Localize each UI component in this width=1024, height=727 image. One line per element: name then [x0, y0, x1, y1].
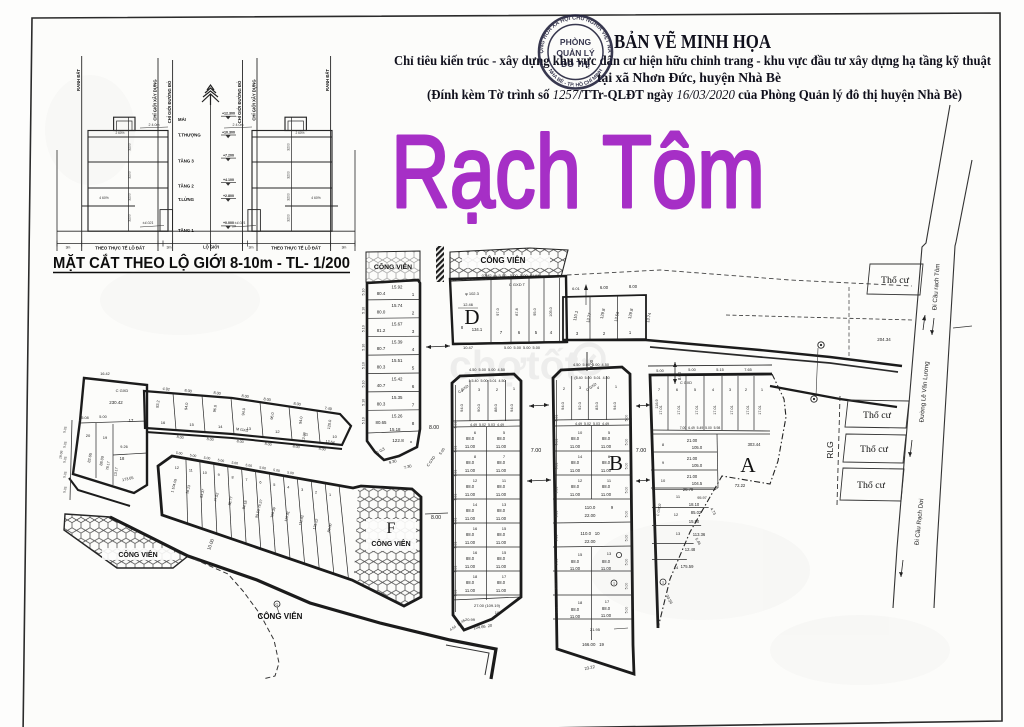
svg-text:RANH ĐẤT: RANH ĐẤT — [325, 69, 330, 91]
svg-text:4 60%: 4 60% — [99, 196, 109, 200]
svg-text:7.00: 7.00 — [531, 448, 542, 454]
svg-text:4.49 5.02 5.03 4.49: 4.49 5.02 5.03 4.49 — [470, 423, 504, 427]
svg-text:9: 9 — [218, 473, 220, 477]
svg-text:CÔNG VIÊN: CÔNG VIÊN — [481, 256, 526, 265]
svg-text:TẦNG 2: TẦNG 2 — [178, 183, 194, 188]
svg-text:7.00: 7.00 — [636, 448, 647, 454]
svg-text:19: 19 — [103, 435, 108, 440]
svg-text:18: 18 — [473, 574, 478, 579]
svg-text:15.26: 15.26 — [392, 413, 404, 418]
svg-text:3200: 3200 — [287, 214, 291, 222]
svg-text:5.10: 5.10 — [362, 289, 366, 296]
svg-text:116.9: 116.9 — [655, 399, 659, 408]
svg-text:5.01: 5.01 — [454, 494, 458, 501]
svg-text:+10.300: +10.300 — [222, 130, 235, 134]
svg-text:15.35: 15.35 — [392, 395, 404, 400]
svg-text:18.10: 18.10 — [689, 502, 700, 507]
svg-text:21.00: 21.00 — [687, 438, 698, 443]
svg-text:+2.800: +2.800 — [223, 194, 234, 198]
svg-text:7: 7 — [245, 478, 247, 482]
svg-text:17.01: 17.01 — [746, 405, 750, 415]
svg-text:1: 1 — [329, 493, 331, 497]
svg-text:5.01: 5.01 — [454, 518, 458, 525]
svg-text:16: 16 — [473, 550, 478, 555]
svg-text:5.01: 5.01 — [555, 415, 559, 422]
svg-text:83.0: 83.0 — [594, 401, 599, 410]
svg-text:88.0: 88.0 — [497, 580, 506, 585]
svg-text:2 4.0m: 2 4.0m — [233, 123, 244, 127]
svg-text:88.0: 88.0 — [466, 436, 475, 441]
svg-text:11.00: 11.00 — [601, 444, 612, 449]
svg-text:15: 15 — [502, 550, 507, 555]
svg-text:3: 3 — [412, 329, 415, 334]
svg-text:5.00: 5.00 — [625, 439, 629, 446]
svg-text:TẦNG 3: TẦNG 3 — [178, 159, 194, 164]
svg-text:BẢN VẼ MINH HỌA: BẢN VẼ MINH HỌA — [614, 31, 771, 53]
svg-text:11.00: 11.00 — [465, 516, 476, 521]
svg-text:88.0: 88.0 — [466, 484, 475, 489]
svg-text:3200: 3200 — [287, 143, 291, 151]
svg-text:LỘ GIỚI: LỘ GIỚI — [203, 245, 219, 250]
svg-text:11.00: 11.00 — [570, 468, 581, 473]
svg-text:6: 6 — [259, 481, 261, 485]
svg-text:3m: 3m — [342, 246, 347, 250]
svg-text:13: 13 — [502, 502, 507, 507]
svg-text:5: 5 — [273, 483, 275, 487]
svg-text:90.0: 90.0 — [476, 403, 481, 412]
svg-text:134.1: 134.1 — [472, 327, 483, 332]
svg-text:5.00: 5.00 — [625, 511, 629, 518]
svg-text:T.LỬNG: T.LỬNG — [178, 197, 195, 202]
svg-text:PHÒNG: PHÒNG — [560, 36, 592, 47]
svg-text:7: 7 — [412, 402, 415, 407]
svg-text:10: 10 — [332, 434, 337, 439]
svg-text:17.01: 17.01 — [659, 405, 663, 415]
svg-text:Thổ cư: Thổ cư — [863, 410, 892, 421]
svg-text:5.00: 5.00 — [625, 415, 629, 422]
svg-text:17.01: 17.01 — [713, 405, 717, 415]
svg-text:27.00 (109.19): 27.00 (109.19) — [474, 603, 501, 608]
svg-text:11.00: 11.00 — [465, 468, 476, 473]
svg-text:12: 12 — [674, 512, 679, 517]
svg-text:11.00: 11.00 — [570, 614, 581, 619]
svg-text:22.00: 22.00 — [585, 539, 597, 544]
svg-text:88.0: 88.0 — [466, 556, 475, 561]
svg-text:15.51: 15.51 — [392, 358, 404, 363]
svg-text:(Đính kèm Tờ trình số 1257/TTr: (Đính kèm Tờ trình số 1257/TTr-QLĐT ngày… — [427, 87, 962, 102]
svg-text:7.65: 7.65 — [744, 368, 751, 372]
svg-text:5.01: 5.01 — [454, 590, 458, 597]
svg-text:QUẢN LÝ: QUẢN LÝ — [556, 47, 595, 58]
svg-text:11.00: 11.00 — [496, 516, 507, 521]
svg-text:5.01: 5.01 — [555, 559, 559, 566]
svg-text:72.22: 72.22 — [735, 483, 746, 488]
svg-text:12: 12 — [175, 466, 179, 470]
svg-text:16: 16 — [473, 526, 478, 531]
svg-text:+0.000: +0.000 — [223, 221, 234, 225]
svg-text:15: 15 — [502, 526, 507, 531]
svg-text:17: 17 — [129, 418, 134, 423]
svg-text:11.00: 11.00 — [601, 492, 612, 497]
svg-text:5.00: 5.00 — [625, 487, 629, 494]
svg-text:88.0: 88.0 — [497, 532, 506, 537]
svg-text:15.39: 15.39 — [392, 340, 404, 345]
svg-text:12.46: 12.46 — [463, 302, 474, 307]
svg-text:88.0: 88.0 — [466, 532, 475, 537]
svg-text:88.0: 88.0 — [602, 436, 611, 441]
svg-text:1: 1 — [412, 292, 415, 297]
svg-text:6.00: 6.00 — [600, 285, 609, 290]
svg-text:14: 14 — [578, 454, 583, 459]
svg-text:4 60%: 4 60% — [311, 196, 321, 200]
svg-text:8.00: 8.00 — [677, 371, 682, 380]
svg-text:230.42: 230.42 — [109, 400, 123, 405]
svg-text:11.00: 11.00 — [465, 564, 476, 569]
svg-text:Chỉ tiêu kiến trúc - xây dựng: Chỉ tiêu kiến trúc - xây dựng khu vực dâ… — [394, 53, 992, 68]
svg-text:5.01: 5.01 — [454, 566, 458, 573]
svg-text:5.01: 5.01 — [454, 446, 458, 453]
svg-text:2: 2 — [315, 490, 317, 494]
svg-text:88.0: 88.0 — [493, 403, 498, 412]
svg-text:88.0: 88.0 — [497, 460, 506, 465]
svg-text:11.00: 11.00 — [496, 468, 507, 473]
svg-text:104.5: 104.5 — [692, 481, 703, 486]
svg-text:6: 6 — [412, 384, 415, 389]
svg-text:B: B — [609, 451, 623, 475]
svg-text:3: 3 — [301, 488, 303, 492]
svg-text:88.0: 88.0 — [571, 460, 580, 465]
svg-text:8: 8 — [232, 476, 234, 480]
svg-text:85.02: 85.02 — [691, 510, 702, 515]
svg-text:95.0: 95.0 — [533, 308, 537, 315]
svg-text:11.00: 11.00 — [496, 588, 507, 593]
svg-text:20.99: 20.99 — [465, 617, 476, 622]
svg-text:3200: 3200 — [128, 193, 132, 201]
svg-text:5.10: 5.10 — [362, 417, 366, 424]
svg-text:11.00: 11.00 — [570, 492, 581, 497]
svg-text:4: 4 — [287, 486, 289, 490]
svg-text:15.18: 15.18 — [390, 427, 402, 432]
svg-text:5.01: 5.01 — [454, 542, 458, 549]
svg-text:92.0: 92.0 — [577, 401, 582, 410]
svg-text:CÔNG VIÊN: CÔNG VIÊN — [371, 539, 410, 548]
svg-text:C GXD T: C GXD T — [509, 282, 526, 287]
svg-text:15: 15 — [578, 552, 583, 557]
svg-text:88.0: 88.0 — [571, 559, 580, 564]
svg-text:4.49 5.02 5.03 4.49: 4.49 5.02 5.03 4.49 — [575, 422, 609, 426]
svg-text:80.7: 80.7 — [377, 346, 386, 351]
svg-text:19: 19 — [495, 610, 500, 615]
svg-text:11.00: 11.00 — [465, 540, 476, 545]
svg-text:11.00: 11.00 — [496, 444, 507, 449]
svg-text:122.8: 122.8 — [392, 438, 404, 443]
svg-text:10: 10 — [578, 430, 583, 435]
svg-text:17.01: 17.01 — [758, 405, 762, 415]
svg-text:88.0: 88.0 — [571, 436, 580, 441]
svg-text:87.8: 87.8 — [515, 308, 519, 315]
svg-text:88.0: 88.0 — [497, 508, 506, 513]
svg-text:11.00: 11.00 — [496, 540, 507, 545]
svg-text:17.01: 17.01 — [730, 405, 734, 415]
svg-text:18: 18 — [120, 456, 125, 461]
svg-text:88.0: 88.0 — [466, 508, 475, 513]
svg-text:3200: 3200 — [128, 171, 132, 179]
svg-text:5.00: 5.00 — [99, 415, 106, 419]
svg-text:80.0: 80.0 — [377, 309, 386, 314]
svg-text:88.0: 88.0 — [466, 460, 475, 465]
svg-text:THEO THỰC TẾ LÔ ĐẤT: THEO THỰC TẾ LÔ ĐẤT — [95, 246, 145, 251]
svg-text:11.00: 11.00 — [465, 492, 476, 497]
svg-text:C GXD: C GXD — [680, 381, 692, 385]
svg-text:Thổ cư: Thổ cư — [857, 480, 886, 491]
svg-text:5.01: 5.01 — [454, 470, 458, 477]
svg-text:11.00: 11.00 — [570, 566, 581, 571]
svg-text:±4.021: ±4.021 — [143, 221, 154, 225]
svg-text:ĐÔ THỊ: ĐÔ THỊ — [561, 58, 590, 69]
svg-text:CÔNG VIÊN: CÔNG VIÊN — [118, 550, 157, 559]
svg-text:11.00: 11.00 — [465, 444, 476, 449]
svg-text:3200: 3200 — [287, 171, 291, 179]
svg-text:CHỈ GIỚI XÂY DỰNG: CHỈ GIỚI XÂY DỰNG — [153, 79, 158, 120]
svg-text:♦: ♦ — [410, 440, 412, 444]
svg-text:12: 12 — [275, 429, 280, 434]
svg-text:10: 10 — [203, 471, 207, 475]
svg-text:40.7: 40.7 — [377, 383, 386, 388]
svg-text:Rạch Tôm: Rạch Tôm — [391, 114, 765, 229]
svg-text:3m: 3m — [66, 246, 71, 250]
svg-text:21.00: 21.00 — [687, 456, 698, 461]
svg-text:D: D — [464, 305, 479, 329]
svg-text:18: 18 — [578, 600, 583, 605]
svg-text:CHỈ GIỚI XÂY DỰNG: CHỈ GIỚI XÂY DỰNG — [252, 79, 257, 120]
svg-text:303.44: 303.44 — [748, 442, 761, 447]
svg-text:F: F — [387, 520, 396, 537]
svg-text:5.01: 5.01 — [555, 487, 559, 494]
svg-text:110.0: 110.0 — [585, 505, 596, 510]
svg-text:11.00: 11.00 — [465, 588, 476, 593]
svg-text:5.00: 5.00 — [688, 368, 695, 372]
svg-text:29.79: 29.79 — [683, 487, 694, 492]
svg-text:7.00 6.49 5.49 5.00 5.98: 7.00 6.49 5.49 5.00 5.98 — [680, 426, 721, 430]
svg-text:105.0: 105.0 — [692, 445, 703, 450]
svg-text:20: 20 — [86, 433, 91, 438]
svg-text:88.0: 88.0 — [497, 484, 506, 489]
svg-text:5.10: 5.10 — [362, 381, 366, 388]
svg-text:12: 12 — [473, 478, 478, 483]
svg-text:88.0: 88.0 — [571, 607, 580, 612]
svg-text:1.5.40 5.00 5.01 4.50: 1.5.40 5.00 5.01 4.50 — [469, 379, 506, 383]
svg-text:15.67: 15.67 — [392, 321, 404, 326]
svg-text:204.34: 204.34 — [877, 337, 891, 342]
svg-text:11.00: 11.00 — [496, 564, 507, 569]
svg-text:C GXD: C GXD — [116, 388, 129, 393]
svg-text:95.97: 95.97 — [697, 496, 707, 500]
svg-text:88.0: 88.0 — [497, 436, 506, 441]
svg-text:94.0: 94.0 — [459, 403, 464, 412]
svg-text:94.0: 94.0 — [612, 401, 617, 410]
svg-text:2: 2 — [412, 310, 415, 315]
svg-text:12: 12 — [578, 478, 583, 483]
svg-text:5: 5 — [412, 366, 415, 371]
svg-text:T.THƯỢNG: T.THƯỢNG — [178, 133, 201, 138]
svg-text:5.01: 5.01 — [555, 463, 559, 470]
svg-text:2 4.0m: 2 4.0m — [149, 123, 160, 127]
svg-text:+4.100: +4.100 — [223, 178, 234, 182]
svg-text:(5.40 5.00 5.01 4.50: (5.40 5.00 5.01 4.50 — [574, 376, 609, 380]
svg-text:3m: 3m — [167, 246, 172, 250]
svg-text:15.74: 15.74 — [392, 303, 404, 308]
svg-text:5.01: 5.01 — [555, 511, 559, 518]
svg-text:MÁI: MÁI — [178, 117, 186, 122]
svg-text:10: 10 — [661, 478, 666, 483]
svg-text:14: 14 — [218, 424, 223, 429]
svg-text:φ 102.3: φ 102.3 — [465, 291, 479, 296]
svg-text:3200: 3200 — [287, 193, 291, 201]
svg-text:5.01: 5.01 — [555, 439, 559, 446]
svg-text:5.15: 5.15 — [716, 368, 723, 372]
svg-text:21.00: 21.00 — [687, 474, 698, 479]
svg-text:94.0: 94.0 — [509, 403, 514, 412]
svg-text:+12.300: +12.300 — [222, 112, 235, 116]
svg-text:5.10: 5.10 — [362, 325, 366, 332]
svg-text:88.0: 88.0 — [602, 484, 611, 489]
svg-text:CHỈ GIỚI ĐƯỜNG ĐỎ: CHỈ GIỚI ĐƯỜNG ĐỎ — [167, 80, 172, 123]
svg-text:88.0: 88.0 — [602, 606, 611, 611]
svg-text:105.0: 105.0 — [692, 463, 703, 468]
svg-text:5.10: 5.10 — [362, 344, 366, 351]
svg-text:11: 11 — [189, 468, 193, 472]
svg-text:88.0: 88.0 — [466, 580, 475, 585]
svg-text:16.42: 16.42 — [100, 372, 110, 376]
svg-text:tại xã Nhơn Đức, huyện Nhà Bè: tại xã Nhơn Đức, huyện Nhà Bè — [597, 70, 781, 85]
svg-text:15: 15 — [189, 422, 194, 427]
svg-text:166.00 19: 166.00 19 — [582, 642, 605, 647]
svg-text:5.00: 5.00 — [656, 369, 663, 373]
svg-text:80.3: 80.3 — [377, 401, 386, 406]
svg-text:110.0 10: 110.0 10 — [580, 531, 600, 536]
svg-text:11.00: 11.00 — [496, 492, 507, 497]
svg-text:8.00: 8.00 — [429, 425, 439, 431]
svg-text:THEO THỰC TẾ LÔ ĐẤT: THEO THỰC TẾ LÔ ĐẤT — [271, 246, 321, 251]
svg-text:RLG: RLG — [825, 441, 835, 458]
svg-text:6.01: 6.01 — [572, 286, 581, 291]
svg-text:CHỈ GIỚI ĐƯỜNG ĐỎ: CHỈ GIỚI ĐƯỜNG ĐỎ — [237, 80, 242, 123]
svg-text:TẦNG 1: TẦNG 1 — [178, 228, 194, 233]
svg-text:Thổ cư: Thổ cư — [881, 275, 910, 286]
svg-text:97.0: 97.0 — [496, 308, 500, 315]
svg-text:Thổ cư: Thổ cư — [860, 444, 889, 455]
svg-text:17.01: 17.01 — [677, 405, 681, 415]
svg-text:±4.021: ±4.021 — [235, 221, 246, 225]
svg-text:17: 17 — [605, 599, 610, 604]
svg-text:94.0: 94.0 — [560, 401, 565, 410]
svg-text:5.00 5.00 5.00 5.00: 5.00 5.00 5.00 5.00 — [504, 346, 540, 350]
svg-text:8.00: 8.00 — [629, 284, 638, 289]
svg-text:3m: 3m — [249, 246, 254, 250]
svg-text:16: 16 — [161, 420, 166, 425]
svg-text:81.2: 81.2 — [377, 328, 386, 333]
svg-text:CÔNG VIÊN: CÔNG VIÊN — [374, 262, 412, 271]
svg-text:5.01: 5.01 — [454, 422, 458, 429]
svg-text:15.42: 15.42 — [392, 377, 404, 382]
svg-text:88.0: 88.0 — [571, 484, 580, 489]
svg-text:22.00: 22.00 — [585, 513, 597, 518]
svg-text:5.01: 5.01 — [555, 583, 559, 590]
svg-text:14: 14 — [473, 502, 478, 507]
svg-text:5.10: 5.10 — [362, 399, 366, 406]
svg-text:8.00: 8.00 — [589, 359, 594, 368]
svg-text:105.0: 105.0 — [549, 307, 553, 317]
svg-text:5.00: 5.00 — [625, 463, 629, 470]
svg-text:5.01: 5.01 — [555, 535, 559, 542]
svg-text:2 60%: 2 60% — [295, 131, 304, 135]
svg-text:17: 17 — [502, 574, 507, 579]
svg-text:3200: 3200 — [128, 214, 132, 222]
svg-text:15.92: 15.92 — [392, 285, 404, 290]
svg-text:10.47: 10.47 — [463, 345, 474, 350]
svg-text:11.00: 11.00 — [601, 613, 612, 618]
svg-text:+7.200: +7.200 — [223, 153, 234, 157]
svg-text:G: G — [276, 602, 279, 607]
svg-text:8.00: 8.00 — [431, 515, 441, 521]
svg-text:A: A — [740, 453, 756, 477]
svg-text:17.01: 17.01 — [695, 405, 699, 415]
svg-text:80.3: 80.3 — [377, 365, 386, 370]
svg-text:80.4: 80.4 — [377, 291, 386, 296]
svg-text:CÔNG VIÊN: CÔNG VIÊN — [258, 612, 303, 621]
svg-text:15.08: 15.08 — [79, 416, 89, 420]
svg-text:5.10: 5.10 — [362, 362, 366, 369]
svg-text:9.26: 9.26 — [120, 445, 127, 449]
svg-text:11.00: 11.00 — [570, 444, 581, 449]
svg-text:88.0: 88.0 — [497, 556, 506, 561]
svg-text:4.50 5.00 5.00 4.50: 4.50 5.00 5.00 4.50 — [469, 368, 505, 372]
svg-text:5.10: 5.10 — [362, 307, 366, 314]
svg-text:8: 8 — [412, 421, 415, 426]
svg-text:5.01: 5.01 — [555, 607, 559, 614]
svg-text:4: 4 — [412, 347, 415, 352]
svg-text:80.65: 80.65 — [376, 420, 388, 425]
svg-text:21.95: 21.95 — [590, 627, 601, 632]
